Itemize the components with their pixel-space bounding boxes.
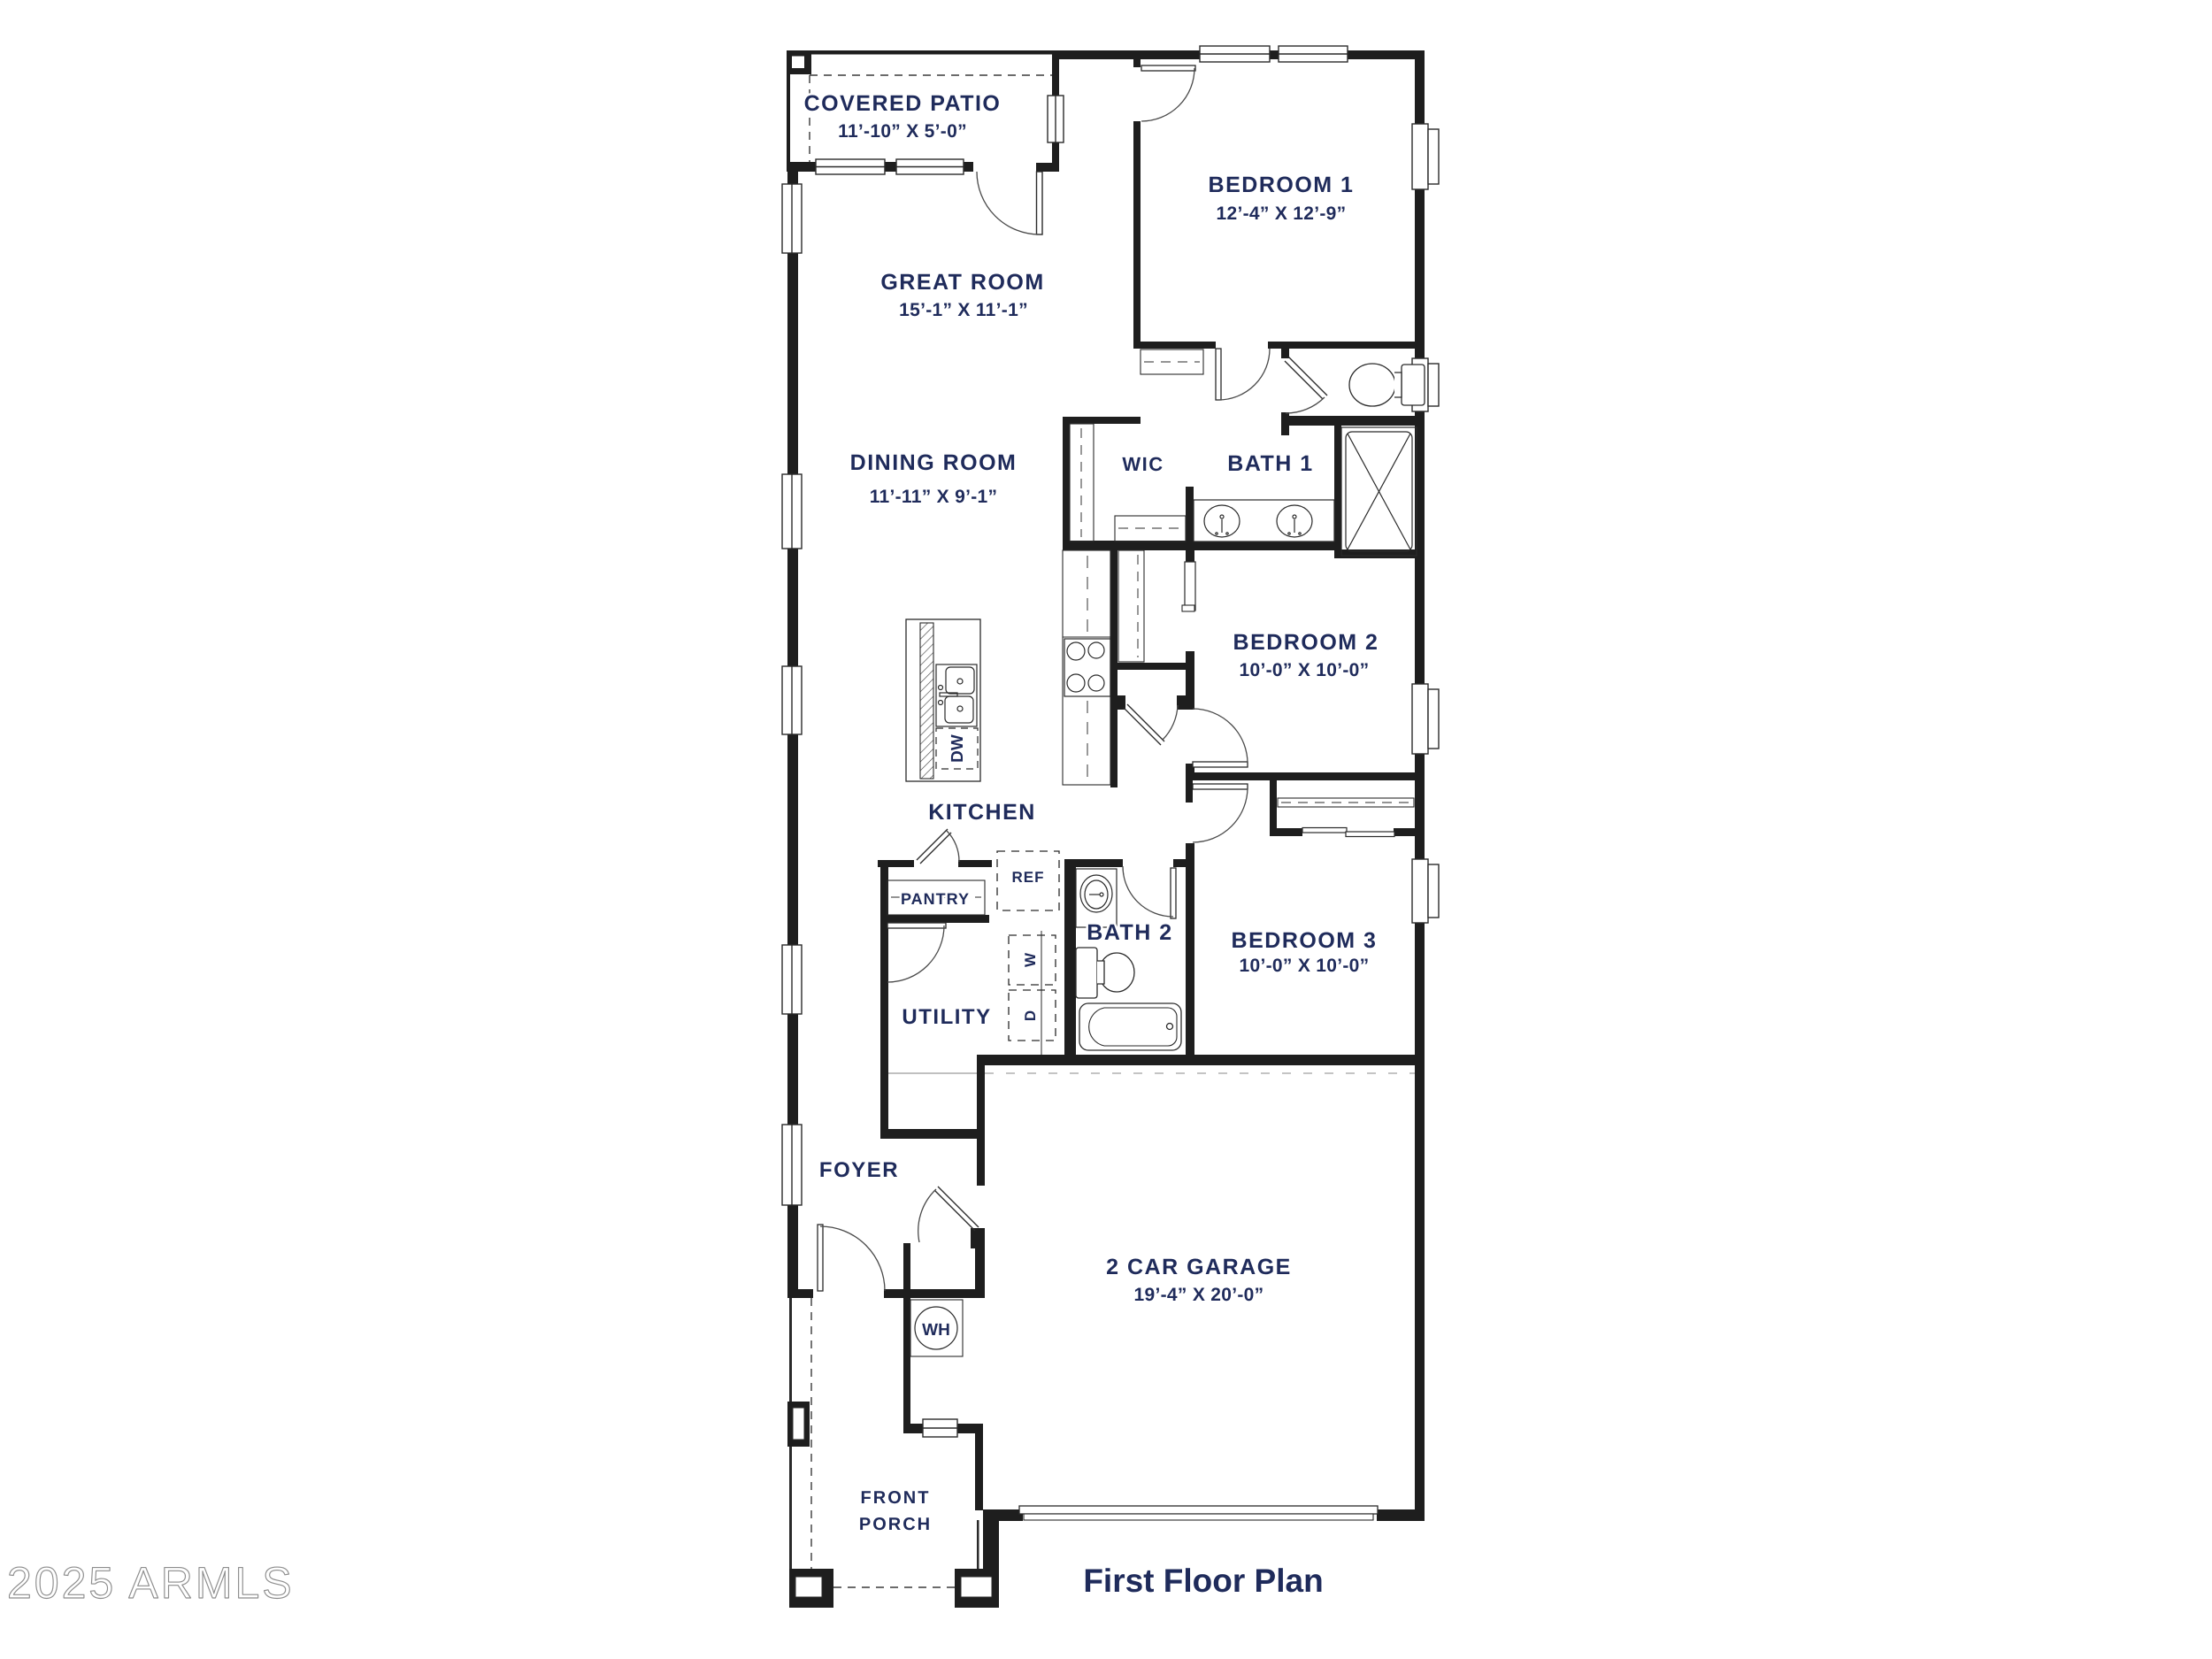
svg-text:First Floor Plan: First Floor Plan [1083,1563,1323,1599]
svg-text:FOYER: FOYER [819,1158,899,1182]
svg-text:DW: DW [949,734,967,763]
svg-text:10’-0” X 10’-0”: 10’-0” X 10’-0” [1240,660,1370,680]
svg-text:W: W [1022,952,1039,967]
svg-text:11’-10” X 5’-0”: 11’-10” X 5’-0” [838,121,967,142]
svg-text:10’-0” X 10’-0”: 10’-0” X 10’-0” [1240,956,1370,976]
svg-text:BEDROOM 1: BEDROOM 1 [1209,173,1355,197]
svg-text:WIC: WIC [1122,453,1164,475]
svg-text:BATH 1: BATH 1 [1227,451,1313,476]
svg-text:BATH 2: BATH 2 [1087,920,1172,945]
svg-text:PORCH: PORCH [859,1515,932,1534]
svg-text:WH: WH [922,1321,950,1340]
svg-text:FRONT: FRONT [861,1488,931,1508]
svg-text:15’-1” X 11’-1”: 15’-1” X 11’-1” [899,300,1028,320]
svg-text:UTILITY: UTILITY [902,1005,991,1029]
svg-text:BEDROOM 2: BEDROOM 2 [1233,630,1379,655]
svg-text:COVERED PATIO: COVERED PATIO [804,91,1002,116]
svg-text:DINING ROOM: DINING ROOM [850,450,1018,475]
svg-text:12’-4” X 12’-9”: 12’-4” X 12’-9” [1217,204,1347,224]
svg-text:BEDROOM 3: BEDROOM 3 [1232,928,1378,953]
svg-text:11’-11” X 9’-1”: 11’-11” X 9’-1” [870,487,998,507]
svg-text:REF: REF [1012,869,1045,886]
svg-text:KITCHEN: KITCHEN [928,800,1036,825]
svg-text:2025 ARMLS: 2025 ARMLS [7,1558,295,1608]
svg-text:PANTRY: PANTRY [901,890,970,908]
svg-text:GREAT ROOM: GREAT ROOM [880,270,1044,295]
svg-text:19’-4” X 20’-0”: 19’-4” X 20’-0” [1134,1285,1264,1305]
svg-text:D: D [1022,1010,1039,1021]
svg-text:2 CAR GARAGE: 2 CAR GARAGE [1106,1255,1292,1279]
